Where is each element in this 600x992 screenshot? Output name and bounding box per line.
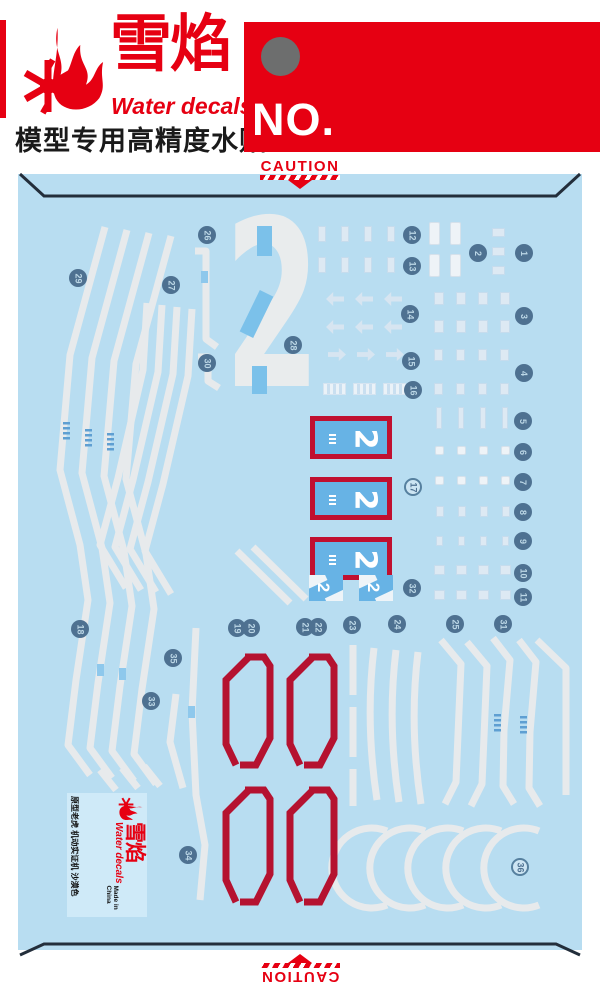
number-badge-15: 15	[402, 352, 420, 370]
number-badge-28: 28	[284, 336, 302, 354]
header-accent-bar	[0, 20, 6, 118]
number-box: NO.	[244, 22, 600, 152]
decal-glyph-pale	[341, 257, 349, 273]
number-badge-1: 1	[515, 244, 533, 262]
decal-glyph-pale	[436, 506, 444, 517]
number-badge-11: 11	[514, 588, 532, 606]
decal-glyph-pale	[458, 506, 466, 517]
decal-glyph-pale	[434, 565, 445, 575]
number-badge-17: 17	[404, 478, 422, 496]
number-badge-34: 34	[179, 846, 197, 864]
decal-glyph-pale	[456, 349, 465, 361]
decal-glyph-pale	[492, 247, 505, 256]
number-badge-22: 22	[309, 618, 327, 636]
hole-punch-dot	[261, 37, 300, 76]
decal-glyph-pale	[456, 292, 466, 305]
decal-glyph-pale	[434, 320, 444, 333]
decal-glyph-pale	[434, 349, 443, 361]
panel-numeral: 2	[350, 429, 380, 450]
decal-glyph-pale	[500, 292, 510, 305]
decal-glyph-tall	[458, 407, 464, 429]
number-badge-23: 23	[343, 616, 361, 634]
decal-glyph-pale	[434, 383, 443, 395]
decal-glyph-white	[479, 476, 488, 485]
decal-glyph-striped	[323, 383, 346, 395]
decal-glyph-pale	[492, 266, 505, 275]
decal-glyph-pale	[387, 226, 395, 242]
decal-glyph-white	[457, 476, 466, 485]
number-badge-20: 20	[242, 619, 260, 637]
decal-glyph-white	[479, 446, 488, 455]
decal-glyph-white	[435, 446, 444, 455]
decal-glyph-pale	[500, 565, 511, 575]
decal-glyph-white	[457, 446, 466, 455]
decal-glyph-pale	[480, 506, 488, 517]
header-tagline: 模型专用高精度水贴	[15, 119, 267, 158]
footer-description: 原型老虎 机动实证机 沙漠色	[69, 796, 80, 914]
footer-made-in: Made in China	[105, 886, 119, 912]
decal-glyph-pale	[318, 226, 326, 242]
decal-glyph-tall	[502, 407, 508, 429]
number-badge-16: 16	[404, 381, 422, 399]
decal-glyph-pale	[478, 292, 488, 305]
decal-glyph-pale	[502, 506, 510, 517]
decal-glyph-pale	[341, 226, 349, 242]
decal-glyph-pale	[478, 383, 487, 395]
footer-brand-cn: 雪焰	[124, 822, 145, 884]
decal-glyph-pale	[434, 292, 444, 305]
footer-brand-box: 雪焰 Water decals Made in China 原型老虎 机动实证机…	[67, 793, 147, 917]
panel-mini-glyph	[329, 553, 336, 565]
decal-glyph-pale	[500, 590, 511, 600]
number-badge-14: 14	[401, 305, 419, 323]
number-badge-12: 12	[403, 226, 421, 244]
caution-arrow-icon	[288, 954, 312, 963]
decal-glyph-white	[450, 222, 461, 245]
decal-glyph-pale	[478, 320, 488, 333]
decal-glyph-tall	[480, 407, 486, 429]
decal-glyph-white	[501, 476, 510, 485]
number-badge-24: 24	[388, 615, 406, 633]
red-framed-panel: 2	[310, 477, 392, 520]
camo-numeral-panel: 2	[309, 575, 343, 601]
decal-glyph-striped	[353, 383, 376, 395]
decal-glyph-tall	[436, 407, 442, 429]
decal-glyph-pale	[456, 320, 466, 333]
number-badge-30: 30	[198, 354, 216, 372]
decal-glyph-pale	[456, 590, 467, 600]
decal-sheet-page: 雪焰 Water decals 模型专用高精度水贴 NO.	[0, 0, 600, 992]
panel-numeral: 2	[315, 583, 332, 592]
number-badge-31: 31	[494, 615, 512, 633]
brand-name-cn: 雪焰	[110, 14, 240, 76]
decal-glyph-pale	[478, 349, 487, 361]
decal-glyph-pale	[500, 383, 509, 395]
decal-glyph-pale	[434, 590, 445, 600]
number-badge-8: 8	[514, 503, 532, 521]
panel-numeral: 2	[350, 490, 380, 511]
decal-glyph-pale	[502, 536, 509, 546]
decal-glyph-pale	[480, 536, 487, 546]
caution-arrow-icon	[288, 180, 312, 189]
decal-glyph-pale	[364, 257, 372, 273]
caution-label: CAUTION	[250, 969, 350, 984]
decal-glyph-pale	[478, 590, 489, 600]
panel-mini-glyph	[329, 432, 336, 444]
number-badge-35: 35	[164, 649, 182, 667]
red-framed-panel: 2	[310, 537, 392, 580]
panel-mini-glyph	[329, 493, 336, 505]
decal-glyph-white	[450, 254, 461, 277]
decal-glyph-pale	[500, 320, 510, 333]
number-badge-10: 10	[514, 564, 532, 582]
decal-glyph-pale	[436, 536, 443, 546]
numeral-stripe-bottom	[252, 366, 267, 394]
decal-glyph-white	[429, 222, 440, 245]
decal-glyph-striped	[383, 383, 406, 395]
number-badge-13: 13	[403, 257, 421, 275]
panel-numeral: 2	[365, 583, 382, 592]
camo-numeral-panel: 2	[359, 575, 393, 601]
brand-name-en: Water decals	[111, 93, 252, 120]
decal-glyph-white	[501, 446, 510, 455]
number-badge-29: 29	[69, 269, 87, 287]
number-badge-18: 18	[71, 620, 89, 638]
numeral-stripe-top	[257, 226, 272, 256]
number-badge-27: 27	[162, 276, 180, 294]
decal-glyph-pale	[456, 565, 467, 575]
caution-mark-bottom: CAUTION	[250, 954, 350, 984]
decal-glyph-pale	[318, 257, 326, 273]
number-label: NO.	[252, 94, 335, 146]
number-badge-6: 6	[514, 443, 532, 461]
footer-brand-en: Water decals	[113, 822, 124, 884]
red-framed-panel: 2	[310, 416, 392, 459]
decal-glyph-pale	[478, 565, 489, 575]
number-badge-36: 36	[511, 858, 529, 876]
number-badge-33: 33	[142, 692, 160, 710]
number-badge-26: 26	[198, 226, 216, 244]
decal-glyph-pale	[500, 349, 509, 361]
decal-glyph-pale	[387, 257, 395, 273]
caution-mark-top: CAUTION	[250, 159, 350, 189]
decal-glyph-white	[429, 254, 440, 277]
number-badge-9: 9	[514, 532, 532, 550]
decal-glyph-pale	[458, 536, 465, 546]
number-badge-4: 4	[515, 364, 533, 382]
footer-flame-icon	[115, 796, 145, 822]
caution-label: CAUTION	[250, 159, 350, 174]
decal-glyph-pale	[456, 383, 465, 395]
brand-flame-logo	[18, 24, 110, 120]
number-badge-3: 3	[515, 307, 533, 325]
decal-glyph-white	[435, 476, 444, 485]
decal-glyph-pale	[364, 226, 372, 242]
number-badge-2: 2	[469, 244, 487, 262]
number-badge-32: 32	[403, 579, 421, 597]
panel-numeral: 2	[350, 550, 380, 571]
number-badge-7: 7	[514, 473, 532, 491]
number-badge-25: 25	[446, 615, 464, 633]
decal-glyph-pale	[492, 228, 505, 237]
number-badge-5: 5	[514, 412, 532, 430]
